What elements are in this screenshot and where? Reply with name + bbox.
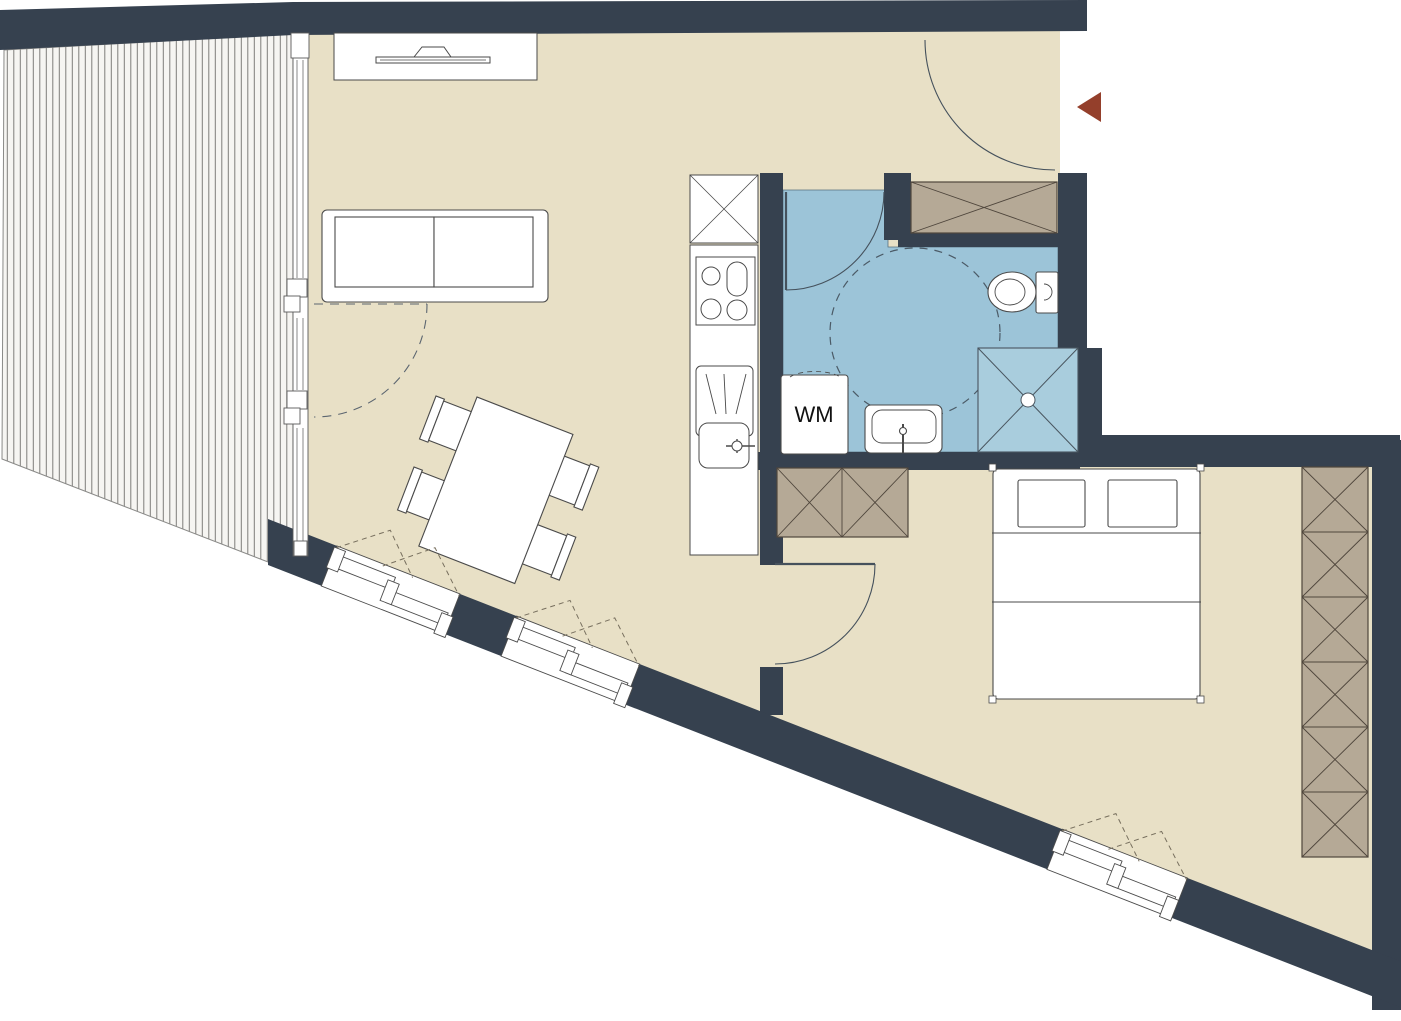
glass-wall-post-top: [291, 33, 309, 58]
wall-bedroom-top: [1060, 435, 1400, 467]
glass-wall-junction: [284, 296, 300, 312]
sofa-cushion: [335, 217, 434, 287]
pillow: [1018, 480, 1085, 527]
terrace-deck: [2, 34, 293, 562]
bedroom-wardrobe: [1302, 467, 1368, 857]
wall-bathroom-bottom: [758, 452, 1080, 470]
sofa: [322, 210, 548, 302]
terrace: [2, 34, 293, 562]
wall-bathroom-top-stub: [884, 173, 911, 240]
kitchen: [690, 175, 758, 555]
bathroom-sink-icon: [865, 405, 942, 453]
washing-machine-label: WM: [794, 402, 833, 427]
washing-machine: WM: [781, 372, 848, 454]
kitchen-sink-icon: [699, 423, 755, 468]
toilet-icon: [988, 272, 1058, 313]
stove-icon: [696, 257, 755, 325]
hall-cabinet: [777, 468, 908, 537]
bed: [989, 464, 1204, 703]
glass-wall-junction: [287, 279, 307, 297]
wall-beside-shower: [1078, 348, 1102, 440]
wall-under-entry-wardrobe: [898, 233, 1058, 247]
wall-right: [1372, 440, 1401, 1010]
glass-wall-junction: [284, 408, 300, 424]
floor-plan: WM: [0, 0, 1401, 1021]
shower-icon: [978, 348, 1078, 452]
glass-wall-junction: [287, 391, 307, 409]
glass-wall-post-bottom: [294, 541, 307, 556]
wall-top: [293, 0, 1087, 35]
entrance-arrow-icon: [1077, 92, 1101, 122]
sofa-cushion: [434, 217, 533, 287]
wall-stub-bedroom-door: [760, 667, 783, 715]
entry-wardrobe: [911, 182, 1057, 233]
pillow: [1108, 480, 1177, 527]
tv-sideboard: [334, 33, 537, 80]
